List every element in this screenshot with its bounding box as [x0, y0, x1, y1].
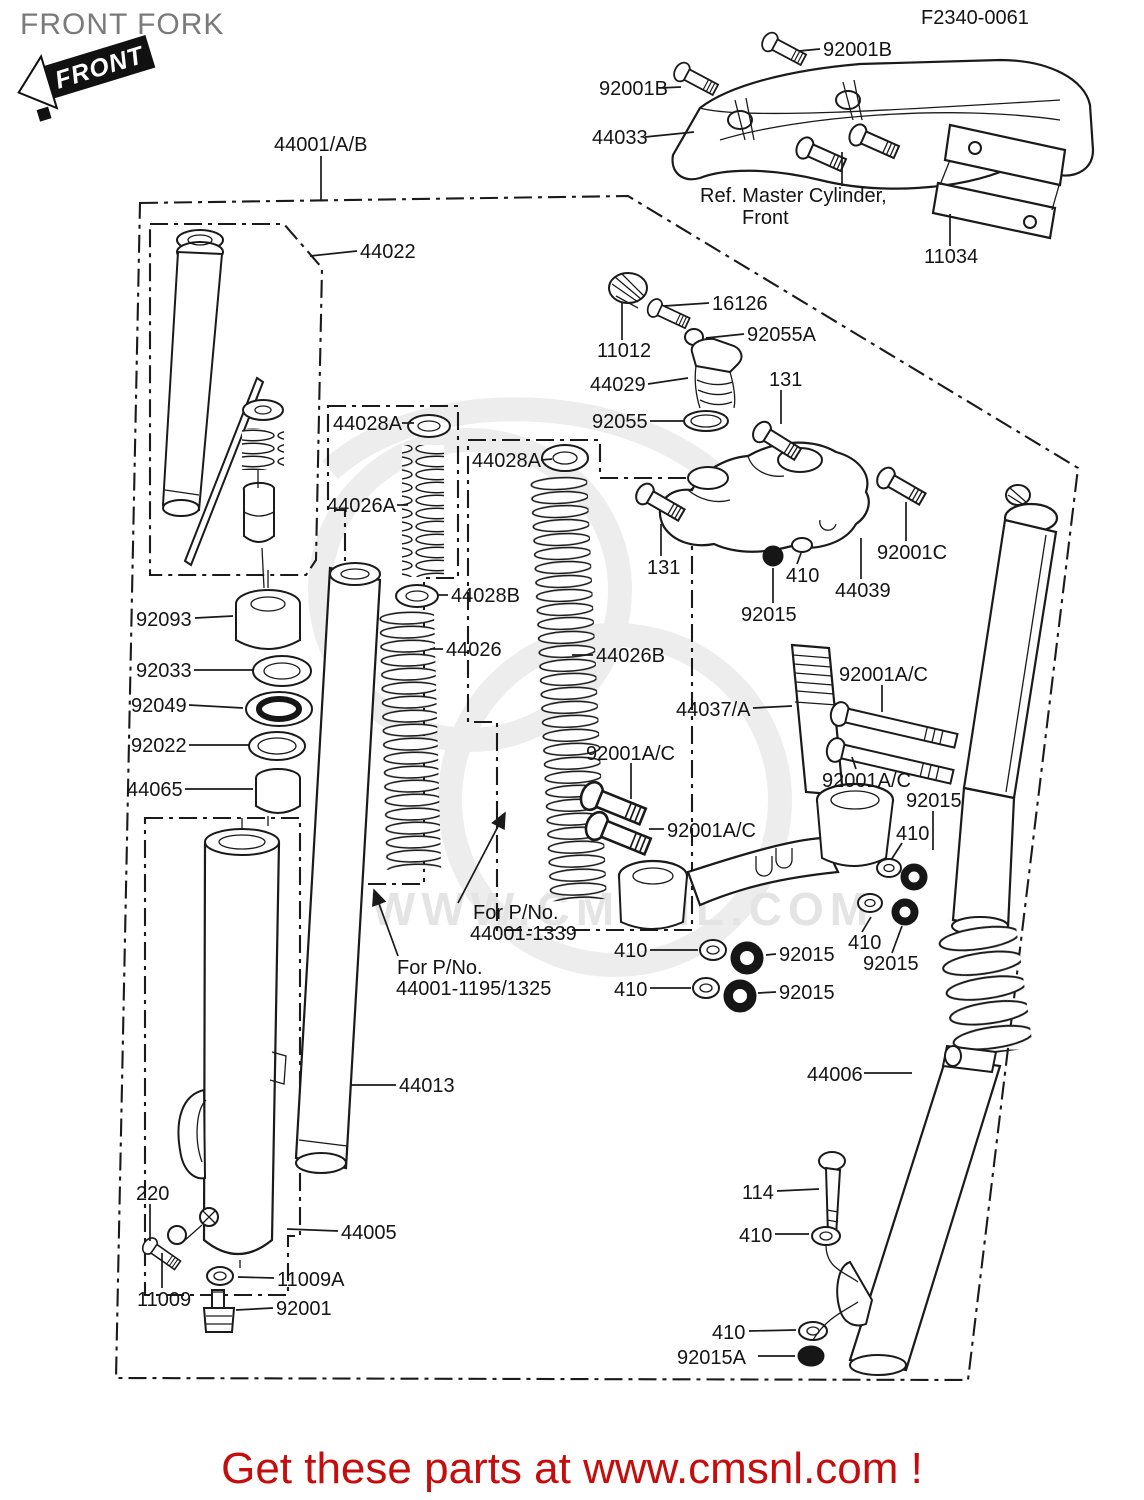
washer-410-br2 — [799, 1322, 827, 1340]
spring-44026a — [402, 445, 444, 577]
damper-rod-assembly-44022 — [163, 230, 284, 588]
guide-44029-top — [692, 339, 742, 372]
bushing-44065 — [256, 769, 300, 813]
bolt-92001c — [874, 464, 928, 508]
part-label-forpno-1b: 44001-1339 — [470, 923, 577, 945]
pinch-bolt-114 — [819, 1152, 845, 1236]
leader-44029 — [648, 378, 688, 384]
leader-44028a-2 — [541, 459, 552, 460]
part-label-92093: 92093 — [136, 609, 192, 631]
part-label-44065: 44065 — [127, 779, 183, 801]
top-cap-stack — [236, 570, 312, 826]
part-label-ref-master-2: Front — [742, 207, 789, 229]
part-label-forpno-2a: For P/No. — [397, 957, 483, 979]
part-label-220: 220 — [136, 1183, 169, 1205]
seat-44028b — [396, 585, 438, 607]
part-label-11009: 11009 — [137, 1289, 191, 1311]
leader-92001-bottom — [236, 1308, 273, 1310]
cmsnl-banner[interactable]: Get these parts at www.cmsnl.com ! — [0, 1444, 1144, 1494]
part-label-410-br2: 410 — [712, 1322, 745, 1344]
part-label-92015-row2: 92015 — [779, 982, 835, 1004]
part-label-410-br1: 410 — [739, 1225, 772, 1247]
leader-410-r1 — [891, 843, 902, 860]
part-label-92049: 92049 — [131, 695, 187, 717]
part-label-11012: 11012 — [597, 340, 651, 362]
part-label-44022: 44022 — [360, 241, 416, 263]
leader-92015-row2 — [758, 992, 776, 993]
part-label-410-row2: 410 — [614, 979, 647, 1001]
leader-114 — [777, 1189, 819, 1191]
seat-44028a-2 — [542, 445, 588, 471]
parts-fiche-page: FRONT FORK — [0, 0, 1144, 1500]
part-label-44033: 44033 — [592, 127, 648, 149]
part-label-410-r1: 410 — [896, 823, 929, 845]
washer-11009a — [207, 1267, 233, 1285]
part-label-44028b: 44028B — [451, 585, 520, 607]
part-label-92022: 92022 — [131, 735, 187, 757]
inner-tube-44013 — [296, 563, 380, 1173]
dust-boot — [936, 921, 1033, 1059]
caliper-lug — [178, 1090, 205, 1178]
part-label-44029: 44029 — [590, 374, 646, 396]
part-label-92001ac-3: 92001A/C — [822, 770, 911, 792]
bolt-92001b-left — [671, 60, 720, 99]
part-label-92015-crown: 92015 — [741, 604, 797, 626]
front-badge-text: FRONT — [52, 41, 149, 95]
washer-92033 — [253, 656, 311, 686]
part-label-410-row1: 410 — [614, 940, 647, 962]
nut-11009 — [168, 1226, 186, 1244]
part-label-92015a-label: 92015A — [677, 1347, 747, 1369]
leader-92049 — [189, 705, 243, 708]
part-label-forpno-1a: For P/No. — [473, 902, 559, 924]
part-label-92001b-top: 92001B — [823, 39, 892, 61]
part-label-92055: 92055 — [592, 411, 648, 433]
bolt-92001b-top — [759, 30, 808, 69]
part-label-ref-master-1: Ref. Master Cylinder, — [700, 185, 887, 207]
part-label-410-crown: 410 — [786, 565, 819, 587]
leader-11009a — [238, 1277, 274, 1278]
part-label-forpno-2b: 44001-1195/1325 — [396, 978, 551, 1000]
part-label-44037a: 44037/A — [676, 699, 751, 721]
part-label-44028a-2: 44028A — [472, 450, 542, 472]
piston — [244, 483, 274, 542]
part-label-131-lower: 131 — [647, 557, 680, 579]
leader-44005 — [287, 1229, 338, 1231]
cap-92093 — [236, 590, 300, 649]
seat-44028a-1 — [408, 415, 450, 437]
part-label-44005: 44005 — [341, 1222, 397, 1244]
leader-410-br2 — [749, 1330, 796, 1331]
leader-92015-row1 — [766, 954, 776, 955]
part-label-131-upper: 131 — [769, 369, 802, 391]
part-label-92001c: 92001C — [877, 542, 947, 564]
part-label-92015-cl: 92015 — [863, 953, 919, 975]
part-label-92015-r1: 92015 — [906, 790, 962, 812]
washer-410-br1 — [812, 1227, 840, 1245]
part-label-92033: 92033 — [136, 660, 192, 682]
part-label-44028a-1: 44028A — [333, 413, 403, 435]
part-label-44039: 44039 — [835, 580, 891, 602]
part-label-114: 114 — [742, 1182, 774, 1204]
washer-410-crown — [792, 538, 812, 552]
part-label-16126: 16126 — [712, 293, 768, 315]
front-fork-diagram: WWW.CMSNL.COM FRONT — [0, 0, 1144, 1500]
leader-92001b-top — [799, 49, 820, 51]
leader-92093 — [195, 616, 233, 618]
part-label-410-cl: 410 — [848, 932, 881, 954]
part-label-92001ac-2: 92001A/C — [586, 743, 675, 765]
part-label-11034: 11034 — [924, 246, 978, 268]
leader-92015-cl — [892, 926, 902, 953]
part-label-92001ac-1: 92001A/C — [839, 664, 928, 686]
valve-16126 — [645, 297, 691, 332]
leader-16126 — [664, 303, 709, 306]
nut-92015-crown — [763, 546, 783, 566]
part-label-92001b-left: 92001B — [599, 78, 668, 100]
part-label-44006: 44006 — [807, 1064, 863, 1086]
axle-lug — [837, 1262, 872, 1325]
part-label-92001ac-4: 92001A/C — [667, 820, 756, 842]
part-label-44026: 44026 — [446, 639, 502, 661]
part-label-44026a: 44026A — [327, 495, 397, 517]
leader-44022 — [310, 251, 357, 256]
rebound-spring — [242, 428, 284, 470]
part-label-92015-row1: 92015 — [779, 944, 835, 966]
nut-92015a — [798, 1346, 824, 1366]
front-direction-badge: FRONT — [10, 25, 160, 125]
leader-92055a — [706, 334, 744, 338]
leader-410-crown — [797, 553, 801, 564]
part-label-92001-bottom: 92001 — [276, 1298, 332, 1320]
part-label-92055a: 92055A — [747, 324, 817, 346]
part-label-44013: 44013 — [399, 1075, 455, 1097]
part-label-11009a: 11009A — [277, 1269, 345, 1291]
part-label-44026b: 44026B — [596, 645, 665, 667]
part-label-44001ab: 44001/A/B — [274, 134, 367, 156]
part-label-fiche-code: F2340-0061 — [921, 7, 1029, 29]
drain-screw-92001 — [204, 1290, 234, 1332]
